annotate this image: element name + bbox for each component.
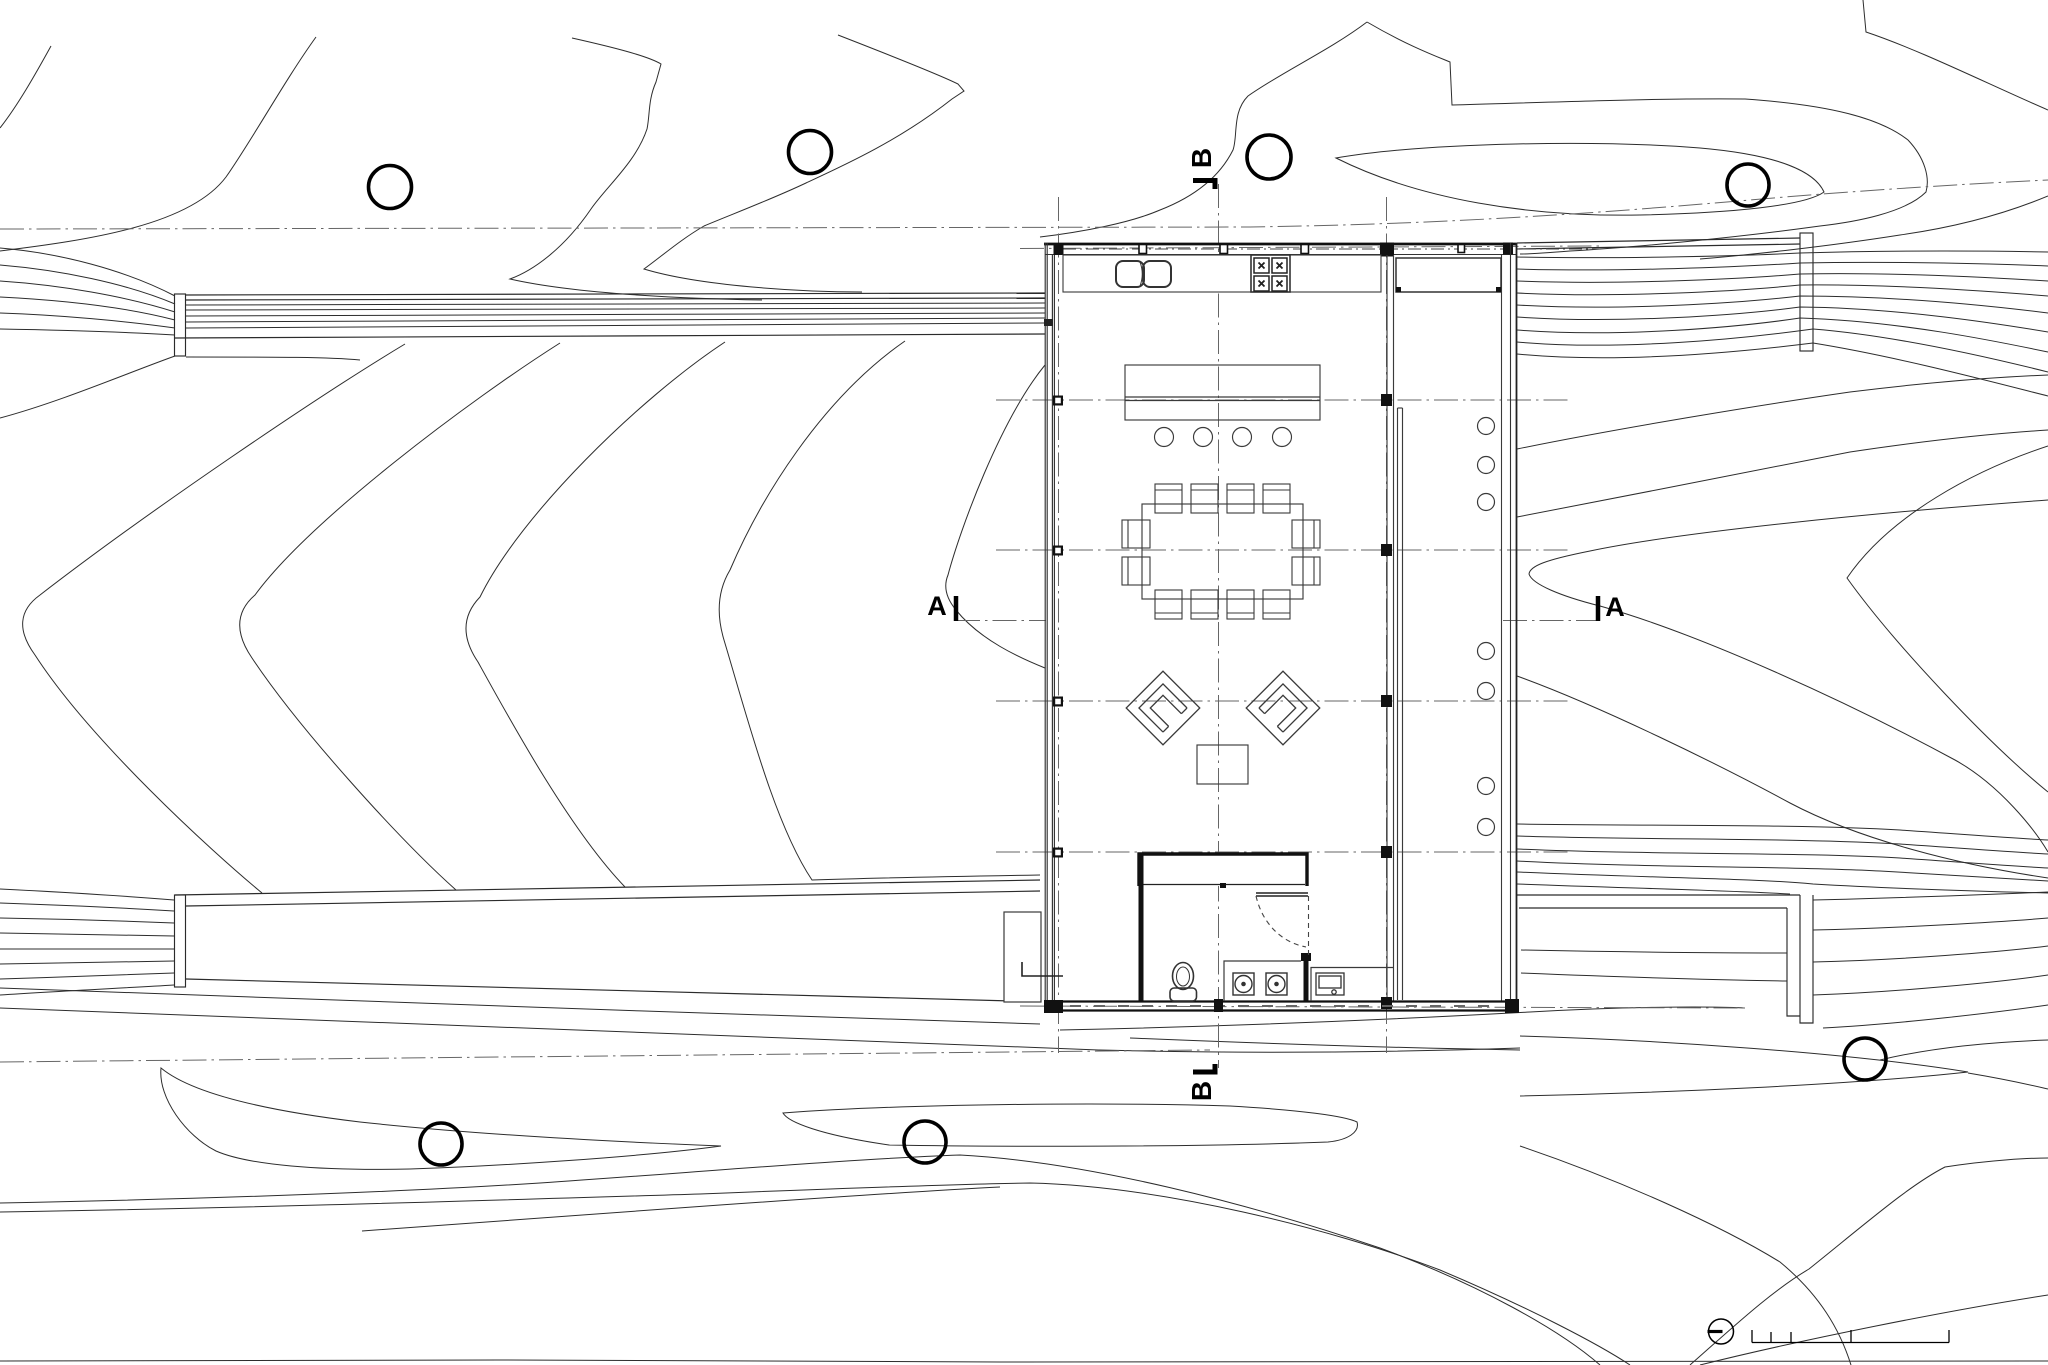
- svg-text:B: B: [1186, 148, 1217, 168]
- svg-text:A: A: [927, 591, 947, 621]
- svg-text:A: A: [1605, 592, 1625, 622]
- svg-text:B: B: [1186, 1081, 1217, 1101]
